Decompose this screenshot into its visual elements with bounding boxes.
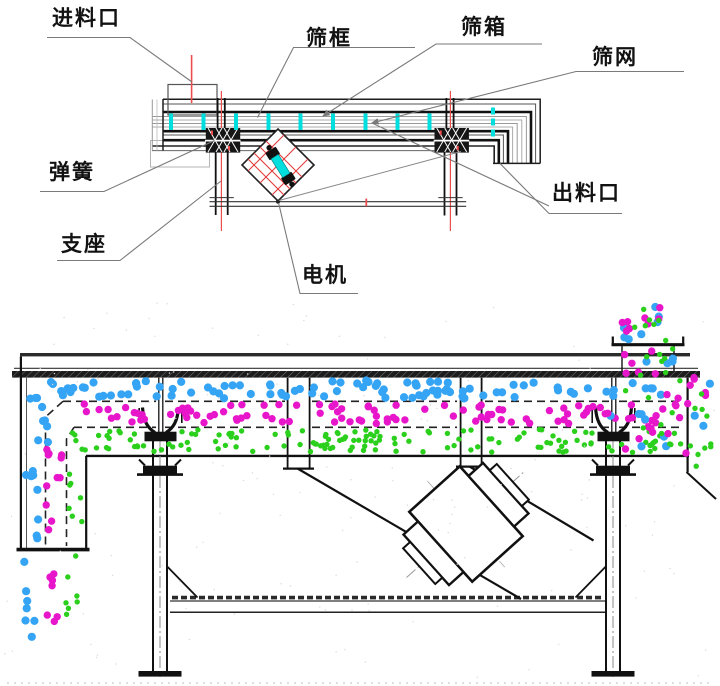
vibrating-screen-diagram: 进料口 筛框 筛箱 筛网 弹簧 出料口 支座 电机	[0, 0, 720, 686]
spring-block-right	[434, 128, 470, 153]
spring-hangers	[159, 378, 616, 408]
side-view-structure-diagram	[40, 38, 684, 294]
label-motor: 电机	[302, 265, 348, 286]
leader-screen-box	[323, 44, 542, 116]
base-plate-right	[592, 671, 635, 677]
feed-inlet-box	[168, 55, 217, 115]
box-corner-plate	[151, 141, 210, 168]
label-screen-frame: 筛框	[306, 28, 352, 49]
label-feed-inlet: 进料口	[52, 8, 121, 29]
bar-red-tick	[365, 199, 367, 207]
diagram-canvas	[0, 0, 720, 686]
base-frame-bar	[210, 199, 467, 207]
leader-screen-mesh	[372, 72, 684, 124]
label-screen-box: 筛箱	[461, 17, 507, 38]
overflow-spout	[687, 472, 717, 499]
label-spring: 弹簧	[49, 162, 95, 183]
gusset-left	[167, 567, 197, 598]
label-support: 支座	[61, 234, 107, 255]
label-screen-mesh: 筛网	[592, 47, 638, 68]
leader-lines	[40, 38, 684, 294]
base-plate-left	[139, 671, 182, 677]
label-discharge-outlet: 出料口	[552, 183, 621, 204]
gusset-right	[576, 567, 606, 598]
spring-right	[592, 408, 635, 442]
screen-box-cover	[12, 353, 700, 378]
base-beam	[167, 567, 606, 613]
screening-process-cross-section	[4, 302, 716, 683]
leader-feed-inlet	[47, 38, 192, 83]
spring-block-left	[205, 128, 241, 153]
background-speckles	[4, 302, 714, 683]
right-leg-assembly	[590, 408, 636, 678]
